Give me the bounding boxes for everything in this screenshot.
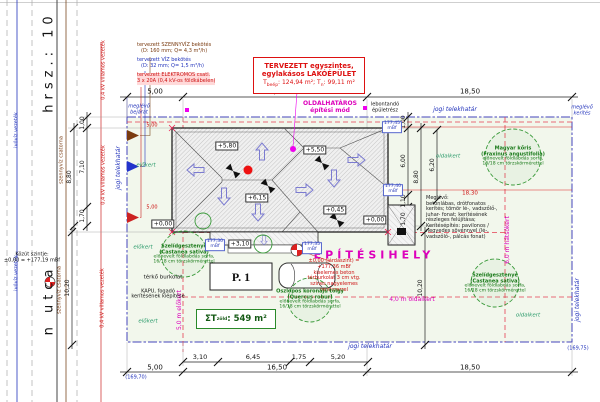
building-areas: Tbeép: 124,94 m²; Tn: 99,11 m² xyxy=(263,79,355,89)
dim-label: 1,00 xyxy=(80,116,86,129)
legal-boundary-label: jogi telekhatár xyxy=(116,146,122,190)
side-yard-label: oldalkert xyxy=(436,154,460,160)
parking-stall-label: P. 1 xyxy=(232,271,250,283)
dim-label: 5,20 xyxy=(331,354,345,361)
corner-level-label: (169,75) xyxy=(567,347,588,352)
side-yard-label: oldalkert xyxy=(516,313,540,319)
power-line-label: 0,4 kV villamos vezeték xyxy=(101,268,106,327)
dim-label: 18,50 xyxy=(460,89,480,96)
elevation-label: +3,10 xyxy=(228,240,251,249)
legal-boundary-label: jogi telekhatár xyxy=(433,107,477,113)
dim-label: 1,70 xyxy=(80,209,86,222)
elevation-label: +0,00 xyxy=(151,220,174,229)
survey-mark-icon xyxy=(363,106,367,110)
power-line-label: 0,4 kV villamos vezeték xyxy=(102,145,107,204)
elevation-label: +0,45 xyxy=(323,206,346,215)
elevation-label: +0,00 xyxy=(363,216,386,225)
dim-label: 1,10 xyxy=(401,194,407,207)
dim-label: 1,75 xyxy=(292,354,306,361)
sewer-line-label: szennyvíz csatorna xyxy=(58,266,63,314)
spot-height-tag: 177,40mBf xyxy=(383,184,403,196)
sewer-line-label: szennyvíz csatorna xyxy=(60,136,65,184)
front-yard-label: előkert xyxy=(136,163,155,169)
power-line-label: 0,4 kV villamos vezeték xyxy=(102,40,107,99)
service-dim-label: 5,00 xyxy=(146,206,157,211)
dim-label: 6,45 xyxy=(246,354,260,361)
dim-label: 5,00 xyxy=(147,89,163,96)
dim-label: 6,00 xyxy=(401,154,407,167)
dim-label: 3,10 xyxy=(193,354,207,361)
survey-mark-icon xyxy=(185,108,189,112)
legal-boundary-label: jogi telekhatár xyxy=(348,344,392,350)
dim-label: 6,20 xyxy=(430,158,436,171)
paving-label: térkő burkolat xyxy=(144,275,183,281)
parcel-number-label: hrsz.: 10 xyxy=(43,11,56,112)
planned-building-callout: TERVEZETT egyszintes, egylakásos LAKÓÉPÜ… xyxy=(253,57,365,94)
dim-label: 1,70 xyxy=(401,212,407,225)
spot-height-tag: 177,35mBf xyxy=(302,242,322,254)
side-setback-label: 4,0 m oldalkert xyxy=(389,297,434,303)
fence-note-block: Meglévő:betonlábas, drótfonatos kerítés;… xyxy=(426,196,512,240)
dim-label: 5,00 xyxy=(147,365,163,372)
corner-level-label: (169,70) xyxy=(125,376,146,381)
dim-label: 18,30 xyxy=(462,191,478,197)
dim-label: 16,50 xyxy=(267,365,287,372)
dim-label: 8,80 xyxy=(414,170,420,183)
green-area-total: ΣTzöld: 549 m² xyxy=(196,309,276,329)
red-point-marker xyxy=(244,166,253,175)
dim-label: 8,80 xyxy=(67,170,73,183)
front-yard-label: előkert xyxy=(138,319,157,325)
elevation-label: +5,80 xyxy=(215,142,238,151)
site-plan-canvas: hrsz.: 10 n utca szennyvíz csatorna szen… xyxy=(0,0,600,402)
street-name-label: n utca xyxy=(43,265,56,336)
elevation-label: +5,50 xyxy=(303,146,326,155)
road-level-note: ±0,00 = +177,19 mBf xyxy=(4,259,60,264)
water-line-label: ivóvíz vezeték xyxy=(15,112,20,148)
spot-height-tag: 177,30mBf xyxy=(205,239,225,251)
service-dim-label: 5,00 xyxy=(146,124,157,129)
dim-label: 18,50 xyxy=(460,365,480,372)
front-yard-label: előkert xyxy=(133,245,152,251)
dim-label: 7,10 xyxy=(80,160,86,173)
dim-label: 10,20 xyxy=(418,279,424,296)
spot-height-tag: 177,45mBf xyxy=(382,121,402,133)
dim-label: 10,20 xyxy=(65,279,71,296)
elevation-label: +6,15 xyxy=(245,194,268,203)
legal-boundary-label: jogi telekhatár xyxy=(575,278,581,322)
building-title-line2: egylakásos LAKÓÉPÜLET xyxy=(262,70,356,78)
